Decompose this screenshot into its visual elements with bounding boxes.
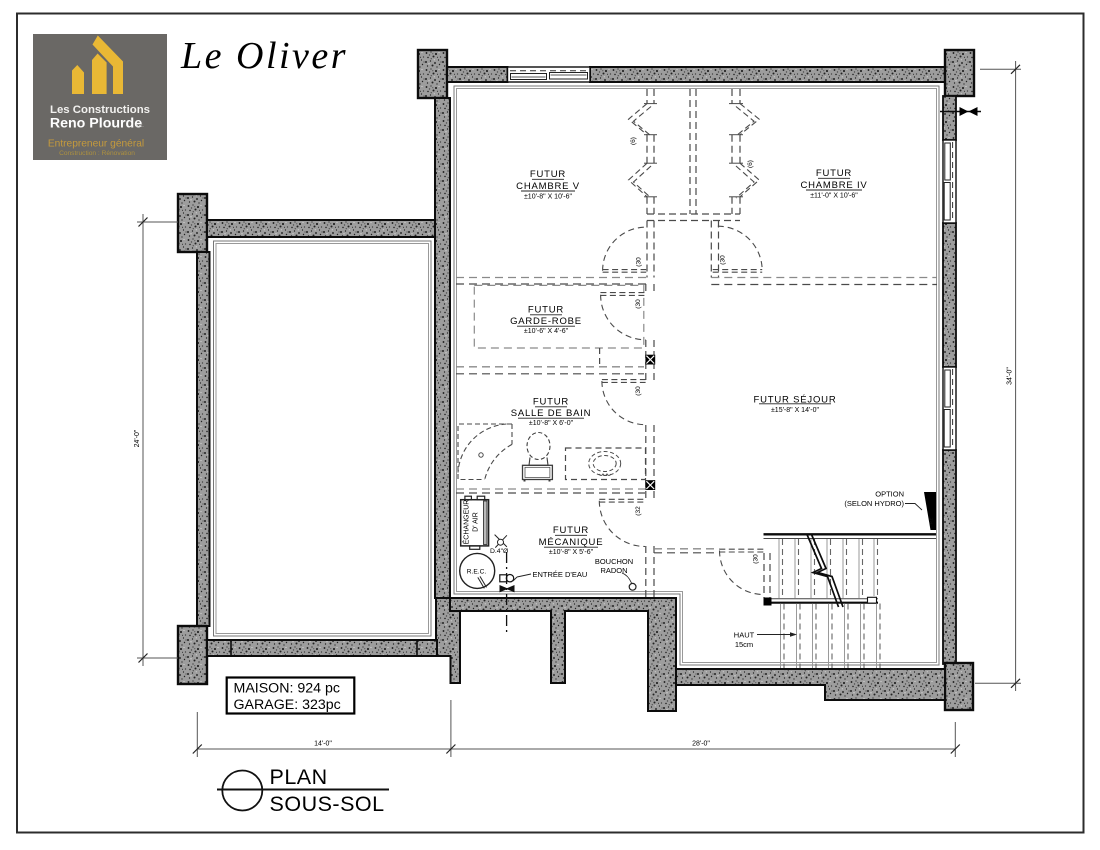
svg-text:ENTRÉE D'EAU: ENTRÉE D'EAU <box>533 570 588 579</box>
svg-text:ÉCHANGEUR: ÉCHANGEUR <box>462 500 471 545</box>
svg-text:Reno Plourde: Reno Plourde <box>50 116 142 132</box>
svg-text:±10'-8" X 10'-6": ±10'-8" X 10'-6" <box>524 193 573 200</box>
svg-text:±10'-6" X 4'-6": ±10'-6" X 4'-6" <box>524 328 569 335</box>
svg-text:±10'-8" X 5'-6": ±10'-8" X 5'-6" <box>549 549 594 556</box>
svg-text:14'-0": 14'-0" <box>314 741 332 748</box>
svg-text:(32: (32 <box>635 506 642 516</box>
svg-text:CHAMBRE V: CHAMBRE V <box>516 181 580 192</box>
svg-text:BOUCHON: BOUCHON <box>595 557 633 566</box>
svg-text:(SELON HYDRO): (SELON HYDRO) <box>844 499 904 508</box>
svg-text:(30: (30 <box>636 257 643 267</box>
svg-text:D' AIR: D' AIR <box>473 512 480 532</box>
svg-text:HAUT: HAUT <box>734 631 755 640</box>
svg-text:±10'-8" X 6'-0": ±10'-8" X 6'-0" <box>529 420 574 427</box>
svg-text:15cm: 15cm <box>735 640 753 649</box>
svg-text:Entrepreneur général: Entrepreneur général <box>48 139 144 150</box>
svg-text:(6): (6) <box>630 137 637 145</box>
svg-text:(30: (30 <box>720 255 727 265</box>
svg-text:SOUS-SOL: SOUS-SOL <box>270 792 385 816</box>
svg-text:(30: (30 <box>635 299 642 309</box>
svg-text:±15'-8" X 14'-0": ±15'-8" X 14'-0" <box>771 407 820 414</box>
svg-text:Les Constructions: Les Constructions <box>50 104 150 116</box>
svg-text:PLAN: PLAN <box>270 765 328 789</box>
svg-text:28'-0": 28'-0" <box>692 741 710 748</box>
svg-text:Construction : Rénovation: Construction : Rénovation <box>59 150 135 157</box>
svg-text:SALLE DE BAIN: SALLE DE BAIN <box>511 408 592 419</box>
svg-text:CHAMBRE IV: CHAMBRE IV <box>800 180 867 191</box>
svg-text:RADON: RADON <box>600 566 627 575</box>
svg-text:FUTUR: FUTUR <box>816 168 852 179</box>
svg-text:FUTUR: FUTUR <box>533 397 569 408</box>
svg-text:(30: (30 <box>753 554 760 564</box>
svg-text:34'-0": 34'-0" <box>1007 367 1014 385</box>
svg-text:GARDE-ROBE: GARDE-ROBE <box>510 316 582 327</box>
svg-text:(30: (30 <box>635 386 642 396</box>
svg-text:MÉCANIQUE: MÉCANIQUE <box>539 537 604 548</box>
svg-text:FUTUR: FUTUR <box>553 525 589 536</box>
svg-text:(6): (6) <box>747 160 754 168</box>
svg-text:24'-0": 24'-0" <box>134 429 141 447</box>
svg-text:FUTUR: FUTUR <box>528 305 564 316</box>
svg-text:OPTION: OPTION <box>875 490 904 499</box>
svg-text:R.E.C.: R.E.C. <box>467 569 487 576</box>
svg-text:P.E: P.E <box>929 517 934 524</box>
svg-text:MAISON: 924 pc: MAISON: 924 pc <box>234 681 340 697</box>
svg-text:Le Oliver: Le Oliver <box>180 35 348 77</box>
svg-text:inc.: inc. <box>136 123 144 129</box>
svg-text:GARAGE: 323pc: GARAGE: 323pc <box>234 697 341 713</box>
svg-text:FUTUR: FUTUR <box>530 169 566 180</box>
svg-text:±11'-0" X 10'-6": ±11'-0" X 10'-6" <box>810 192 858 199</box>
